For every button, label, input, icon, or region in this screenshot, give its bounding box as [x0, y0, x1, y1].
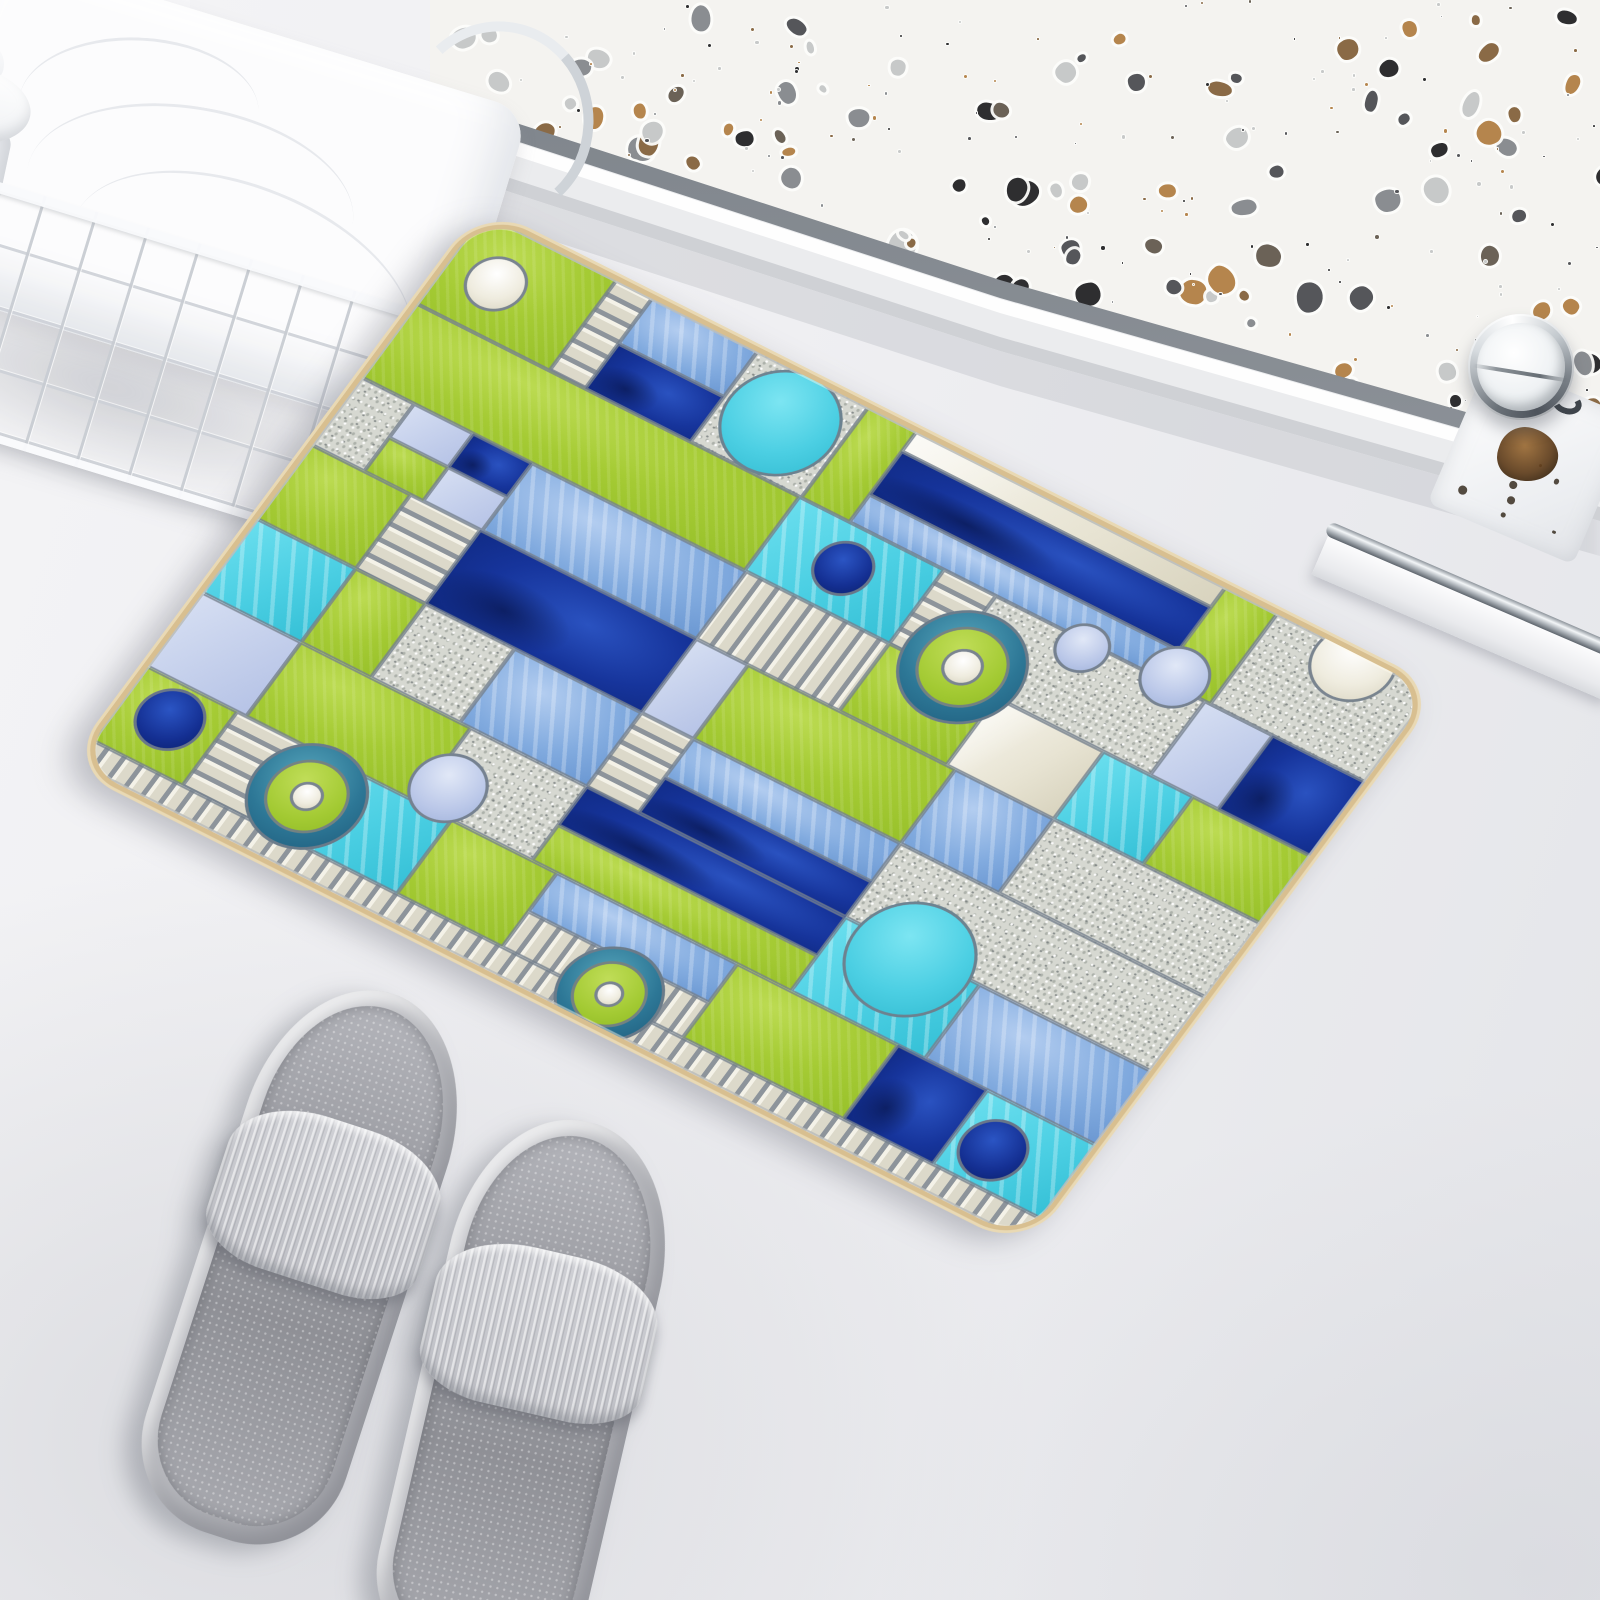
bathroom-scene — [0, 0, 1600, 1600]
terrazzo-dot — [781, 156, 784, 159]
terrazzo-dot — [1242, 129, 1243, 130]
terrazzo-dot — [1477, 182, 1481, 186]
terrazzo-dot — [778, 101, 781, 104]
terrazzo-dot — [1313, 78, 1315, 80]
terrazzo-chip — [1295, 281, 1324, 314]
terrazzo-dot — [885, 6, 888, 9]
terrazzo-dot — [1185, 213, 1187, 215]
terrazzo-dot — [770, 91, 772, 93]
terrazzo-dot — [1122, 135, 1126, 139]
terrazzo-dot — [777, 88, 780, 91]
terrazzo-dot — [964, 75, 967, 78]
terrazzo-dot — [798, 62, 800, 64]
terrazzo-dot — [873, 116, 876, 119]
terrazzo-dot — [1226, 100, 1228, 102]
terrazzo-chip — [1376, 57, 1401, 81]
terrazzo-dot — [1500, 212, 1502, 214]
plate-speckle — [1501, 512, 1507, 518]
terrazzo-chip — [950, 178, 967, 195]
terrazzo-chip — [1593, 164, 1600, 188]
terrazzo-chip — [849, 109, 870, 128]
terrazzo-chip — [1472, 15, 1481, 25]
terrazzo-chip — [782, 147, 797, 158]
terrazzo-dot — [1471, 160, 1473, 162]
terrazzo-chip — [1245, 318, 1256, 329]
terrazzo-dot — [1551, 223, 1554, 226]
terrazzo-dot — [1143, 198, 1145, 200]
terrazzo-chip — [773, 128, 788, 145]
terrazzo-chip — [1231, 199, 1258, 217]
terrazzo-chip — [980, 216, 991, 227]
terrazzo-chip — [1397, 111, 1412, 126]
terrazzo-dot — [959, 21, 962, 24]
terrazzo-dot — [681, 74, 683, 76]
terrazzo-dot — [852, 138, 855, 141]
terrazzo-dot — [1352, 88, 1355, 91]
terrazzo-dot — [1441, 16, 1442, 17]
terrazzo-chip — [1555, 9, 1577, 26]
terrazzo-chip — [1345, 282, 1376, 314]
terrazzo-dot — [1171, 136, 1174, 139]
terrazzo-dot — [1437, 3, 1440, 6]
terrazzo-dot — [1567, 94, 1569, 96]
terrazzo-chip — [818, 84, 828, 94]
terrazzo-dot — [830, 135, 832, 137]
terrazzo-chip — [1238, 290, 1250, 303]
plate-speckle — [1457, 485, 1468, 496]
terrazzo-dot — [1219, 293, 1221, 295]
terrazzo-chip — [666, 84, 687, 104]
chrome-knob — [1468, 314, 1574, 420]
terrazzo-dot — [868, 85, 870, 87]
terrazzo-dot — [1456, 349, 1458, 351]
terrazzo-chip — [1436, 360, 1459, 383]
terrazzo-chip — [1511, 207, 1528, 223]
terrazzo-chip — [784, 16, 809, 39]
terrazzo-chip — [1269, 164, 1285, 179]
terrazzo-dot — [1075, 143, 1076, 144]
terrazzo-dot — [1484, 260, 1487, 263]
terrazzo-dot — [885, 92, 888, 95]
terrazzo-dot — [1289, 333, 1292, 336]
terrazzo-dot — [755, 41, 758, 44]
terrazzo-dot — [1015, 136, 1018, 139]
terrazzo-chip — [1560, 296, 1581, 317]
terrazzo-dot — [1122, 262, 1124, 264]
terrazzo-dot — [1465, 400, 1466, 401]
terrazzo-dot — [1593, 125, 1595, 127]
terrazzo-dot — [1395, 190, 1399, 194]
terrazzo-chip — [1231, 73, 1244, 84]
terrazzo-dot — [790, 45, 793, 48]
plate-speckle — [1508, 480, 1518, 490]
terrazzo-dot — [1423, 78, 1425, 80]
terrazzo-dot — [1185, 5, 1187, 7]
terrazzo-dot — [1201, 2, 1203, 4]
terrazzo-chip — [1459, 89, 1484, 119]
terrazzo-dot — [1444, 129, 1448, 133]
terrazzo-dot — [1183, 200, 1185, 202]
terrazzo-dot — [1574, 49, 1577, 52]
terrazzo-dot — [1477, 316, 1478, 317]
terrazzo-chip — [778, 165, 805, 192]
terrazzo-dot — [693, 80, 695, 82]
terrazzo-chip — [735, 131, 754, 147]
terrazzo-chip — [1143, 236, 1165, 256]
terrazzo-chip — [889, 58, 906, 76]
terrazzo-dot — [1499, 285, 1502, 288]
terrazzo-dot — [1037, 38, 1039, 40]
terrazzo-dot — [1306, 243, 1308, 245]
terrazzo-chip — [1052, 58, 1080, 86]
terrazzo-dot — [898, 150, 901, 153]
terrazzo-dot — [1066, 236, 1068, 238]
terrazzo-dot — [686, 5, 689, 8]
terrazzo-chip — [1253, 242, 1284, 271]
terrazzo-dot — [1330, 107, 1332, 109]
terrazzo-dot — [1161, 210, 1163, 212]
terrazzo-dot — [1558, 288, 1560, 290]
terrazzo-dot — [1336, 131, 1338, 133]
terrazzo-dot — [1191, 197, 1193, 199]
terrazzo-chip — [1563, 72, 1583, 95]
terrazzo-dot — [751, 28, 754, 31]
terrazzo-dot — [708, 44, 711, 47]
terrazzo-chip — [1333, 34, 1362, 63]
terrazzo-dot — [1387, 306, 1390, 309]
terrazzo-chip — [1429, 140, 1450, 160]
terrazzo-dot — [1190, 273, 1192, 275]
terrazzo-chip — [1479, 244, 1501, 267]
terrazzo-chip — [1475, 40, 1501, 65]
terrazzo-chip — [684, 154, 702, 172]
terrazzo-dot — [760, 119, 762, 121]
terrazzo-dot — [1353, 74, 1355, 76]
terrazzo-chip — [1363, 90, 1379, 113]
terrazzo-chip — [806, 41, 815, 54]
terrazzo-dot — [768, 155, 770, 157]
terrazzo-dot — [1251, 245, 1253, 247]
terrazzo-chip — [1419, 173, 1454, 208]
terrazzo-dot — [900, 35, 902, 37]
terrazzo-dot — [1112, 301, 1114, 303]
terrazzo-dot — [1543, 156, 1545, 158]
terrazzo-dot — [1596, 247, 1597, 248]
terrazzo-dot — [1149, 75, 1152, 78]
terrazzo-dot — [888, 128, 890, 130]
terrazzo-chip — [691, 5, 712, 32]
terrazzo-dot — [1101, 246, 1104, 249]
terrazzo-dot — [968, 137, 971, 140]
terrazzo-dot — [1522, 131, 1525, 134]
terrazzo-dot — [1206, 83, 1209, 86]
terrazzo-dot — [1249, 0, 1251, 2]
terrazzo-dot — [1426, 334, 1429, 337]
terrazzo-dot — [1328, 269, 1330, 271]
terrazzo-dot — [1375, 235, 1379, 239]
terrazzo-dot — [718, 67, 720, 69]
terrazzo-chip — [1076, 53, 1087, 64]
terrazzo-dot — [1027, 250, 1030, 253]
terrazzo-dot — [1430, 160, 1432, 162]
terrazzo-dot — [1430, 250, 1433, 253]
terrazzo-dot — [1500, 293, 1503, 296]
terrazzo-chip — [1049, 182, 1064, 199]
terrazzo-dot — [654, 113, 656, 115]
terrazzo-chip — [1223, 124, 1251, 151]
plate-speckle — [1552, 530, 1557, 535]
terrazzo-dot — [1285, 132, 1287, 134]
terrazzo-chip — [634, 104, 647, 119]
terrazzo-chip — [1179, 278, 1207, 305]
terrazzo-dot — [1509, 7, 1511, 9]
terrazzo-dot — [628, 154, 630, 156]
terrazzo-dot — [1457, 154, 1460, 157]
terrazzo-chip — [1071, 173, 1089, 192]
terrazzo-dot — [994, 226, 997, 229]
plate-speckle — [1553, 478, 1560, 485]
terrazzo-dot — [994, 80, 996, 82]
terrazzo-chip — [1401, 19, 1420, 39]
terrazzo-dot — [1577, 138, 1579, 140]
terrazzo-dot — [621, 76, 623, 78]
terrazzo-dot — [1568, 262, 1571, 265]
terrazzo-dot — [1391, 305, 1393, 307]
terrazzo-chip — [722, 123, 734, 137]
terrazzo-dot — [1586, 389, 1588, 391]
terrazzo-dot — [1354, 358, 1358, 362]
terrazzo-dot — [988, 238, 990, 240]
terrazzo-dot — [752, 170, 754, 172]
terrazzo-dot — [1501, 170, 1504, 173]
terrazzo-dot — [565, 36, 568, 39]
terrazzo-chip — [1127, 73, 1145, 92]
terrazzo-dot — [795, 70, 798, 73]
terrazzo-dot — [645, 139, 648, 142]
terrazzo-chip — [1207, 80, 1233, 98]
terrazzo-dot — [1252, 127, 1255, 130]
terrazzo-dot — [946, 43, 948, 45]
terrazzo-dot — [1339, 281, 1341, 283]
terrazzo-dot — [1347, 259, 1349, 261]
terrazzo-dot — [745, 147, 748, 150]
terrazzo-chip — [1159, 184, 1176, 198]
plate-speckle — [1506, 495, 1516, 505]
terrazzo-dot — [633, 52, 636, 55]
terrazzo-chip — [1508, 106, 1521, 123]
terrazzo-dot — [1294, 38, 1296, 40]
terrazzo-dot — [1321, 70, 1324, 73]
terrazzo-dot — [1087, 212, 1089, 214]
terrazzo-dot — [1365, 83, 1368, 86]
terrazzo-dot — [1054, 247, 1055, 248]
terrazzo-chip — [1450, 395, 1462, 408]
terrazzo-chip — [1113, 32, 1128, 47]
terrazzo-dot — [1080, 123, 1082, 125]
terrazzo-dot — [664, 28, 665, 29]
terrazzo-dot — [1385, 37, 1387, 39]
terrazzo-dot — [1510, 185, 1513, 188]
terrazzo-dot — [821, 204, 823, 206]
terrazzo-dot — [1339, 37, 1341, 39]
